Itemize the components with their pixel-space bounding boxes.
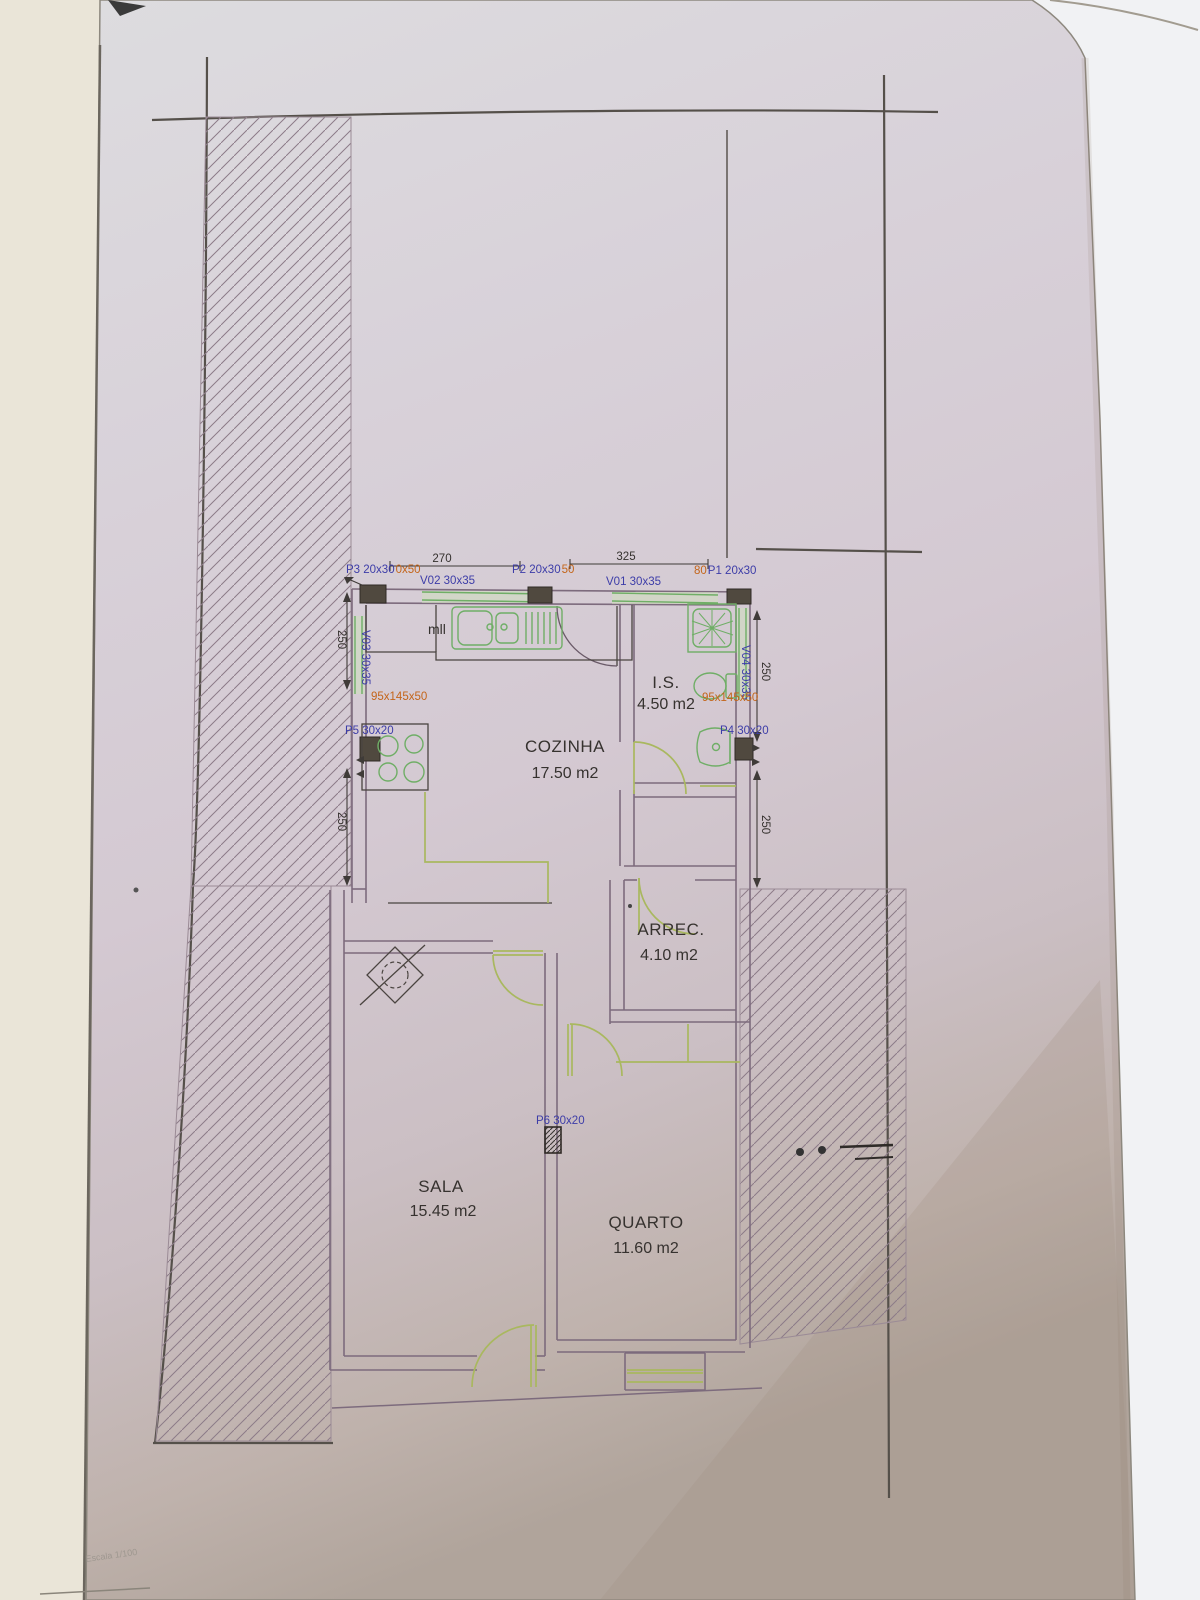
dim-270: 270 (432, 553, 451, 565)
label-v01: V01 30x35 (606, 576, 661, 588)
pillar-p1 (727, 589, 751, 604)
svg-text:QUARTO: QUARTO (608, 1213, 683, 1232)
label-p2: P2 20x3050 (512, 564, 574, 576)
svg-text:COZINHA: COZINHA (525, 737, 605, 756)
floor-plan-photo: Escala 1/100 (0, 0, 1200, 1600)
label-v02: V02 30x35 (420, 575, 475, 587)
label-p3: P3 20x300x50 (346, 564, 421, 576)
svg-text:ARREC.: ARREC. (637, 920, 704, 939)
dim-250-left-upper: 250 (335, 630, 347, 649)
svg-text:4.50 m2: 4.50 m2 (637, 696, 695, 713)
label-p1: 80P1 20x30 (694, 565, 756, 577)
svg-text:SALA: SALA (418, 1177, 464, 1196)
label-p5: P5 30x20 (345, 725, 394, 737)
counter-annotation: mll (428, 621, 446, 637)
label-counter-left: 95x145x50 (371, 691, 427, 703)
pillar-p2 (528, 587, 552, 603)
svg-text:4.10 m2: 4.10 m2 (640, 947, 698, 964)
dim-250-right-lower: 250 (759, 815, 771, 834)
svg-text:15.45 m2: 15.45 m2 (410, 1203, 477, 1220)
pillar-p3 (360, 585, 386, 603)
dim-325: 325 (616, 551, 635, 563)
svg-text:11.60 m2: 11.60 m2 (613, 1240, 679, 1257)
svg-text:I.S.: I.S. (652, 673, 680, 692)
label-counter-right: 95x145x50 (702, 692, 758, 704)
pillar-p6 (545, 1127, 561, 1153)
dim-250-right-upper: 250 (759, 662, 771, 681)
pillar-p4 (735, 738, 753, 760)
svg-text:17.50 m2: 17.50 m2 (532, 765, 599, 782)
hatch-area-right (740, 889, 906, 1344)
dim-250-left-lower: 250 (335, 812, 347, 831)
hatch-area-upper-left (191, 117, 351, 886)
photographed-floor-plan-page: Escala 1/100 (0, 0, 1200, 1600)
label-v03: V03 30x35 (359, 630, 371, 685)
label-p4: P4 30x20 (720, 725, 769, 737)
window-v01 (612, 592, 718, 604)
label-p6: P6 30x20 (536, 1115, 585, 1127)
